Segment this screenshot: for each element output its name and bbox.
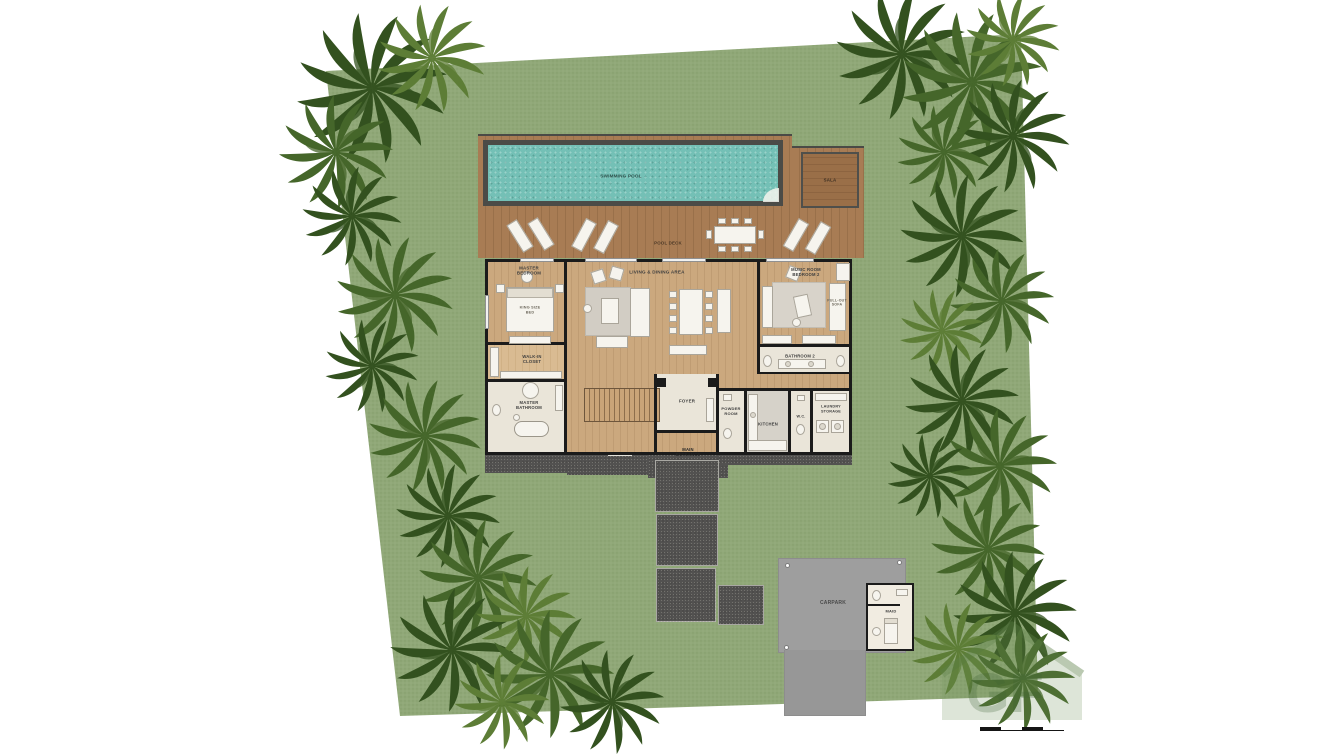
kitchen-sink xyxy=(750,412,756,418)
wardrobe xyxy=(836,263,850,281)
watermark-letters: GF xyxy=(966,661,1044,724)
maid-toilet xyxy=(872,590,881,601)
maid-basin xyxy=(896,589,908,596)
sala-label: SALA xyxy=(824,177,837,182)
basin xyxy=(797,395,805,401)
outdoor-chair xyxy=(744,218,752,224)
music-room-label: MUSIC ROOM BEDROOM 2 xyxy=(789,267,823,277)
outdoor-chair xyxy=(731,218,739,224)
swimming-pool-label: SWIMMING POOL xyxy=(600,173,641,179)
console xyxy=(669,345,707,355)
pool-deck-label: POOL DECK xyxy=(654,240,682,245)
outdoor-chair xyxy=(758,230,764,239)
staircase xyxy=(584,388,660,422)
outdoor-chair xyxy=(718,246,726,252)
master-bathroom-label: MASTER BATHROOM xyxy=(511,400,547,410)
kitchen-counter xyxy=(748,440,787,451)
site-plan: SWIMMING POOL SALA POOL DECK MAIN ENTRAN… xyxy=(0,0,1342,754)
basin xyxy=(785,361,791,367)
entrance-path-square xyxy=(718,585,764,625)
foyer-label: FOYER xyxy=(679,398,695,403)
toilet xyxy=(492,404,501,416)
laundry-counter xyxy=(815,393,847,401)
outdoor-chair xyxy=(706,230,712,239)
foyer-bench xyxy=(706,398,714,422)
piano xyxy=(762,286,773,328)
main-entrance-label: MAIN ENTRANCE xyxy=(670,447,706,457)
coffee-table xyxy=(601,298,619,324)
carpark-label: CARPARK xyxy=(820,600,846,606)
foyer-column xyxy=(657,378,666,387)
dryer-door xyxy=(834,423,841,430)
washer-door xyxy=(819,423,826,430)
toilet xyxy=(836,355,845,367)
dining-chair xyxy=(669,315,677,322)
powder-room-label: POWDER ROOM xyxy=(719,407,743,417)
kitchen-label: KITCHEN xyxy=(758,421,778,426)
bathroom-2-label: BATHROOM 2 xyxy=(785,353,815,358)
dining-chair xyxy=(705,291,713,298)
dining-chair xyxy=(669,291,677,298)
dining-chair xyxy=(705,315,713,322)
dining-chair xyxy=(669,303,677,310)
basin xyxy=(723,394,732,401)
slab-marker xyxy=(784,645,789,650)
scale-bar xyxy=(980,726,1064,731)
basin xyxy=(808,361,814,367)
wardrobe xyxy=(802,335,836,344)
closet-shelf xyxy=(500,371,562,379)
dining-chair xyxy=(705,303,713,310)
toilet xyxy=(763,355,772,367)
entrance-path-square xyxy=(655,460,719,512)
living-dining-label: LIVING & DINING AREA xyxy=(629,269,684,275)
laundry-label: LAUNDRY STORAGE xyxy=(817,404,845,413)
nightstand xyxy=(555,284,564,293)
foyer-column xyxy=(708,378,717,387)
wardrobe xyxy=(762,335,792,344)
dining-chair xyxy=(669,327,677,334)
entrance-path-square xyxy=(656,514,718,566)
outdoor-chair xyxy=(744,246,752,252)
outdoor-dining-table xyxy=(714,226,756,244)
slab-marker xyxy=(897,560,902,565)
toilet xyxy=(723,428,732,439)
nightstand xyxy=(496,284,505,293)
sofa xyxy=(630,288,650,337)
kitchen-island xyxy=(717,289,731,333)
shower xyxy=(522,382,539,399)
walk-in-closet-label: WALK-IN CLOSET xyxy=(518,354,546,364)
bathtub xyxy=(514,421,549,437)
maid-bed-pillow xyxy=(884,618,898,624)
pull-out-sofa-label: PULL-OUT SOFA xyxy=(827,299,847,308)
side-table xyxy=(792,318,801,327)
slab-marker xyxy=(785,563,790,568)
bathroom-vanity xyxy=(555,385,563,411)
outdoor-chair xyxy=(731,246,739,252)
outdoor-chair xyxy=(718,218,726,224)
stool xyxy=(513,414,520,421)
closet-shelf xyxy=(490,347,499,377)
daybed xyxy=(596,336,628,348)
kitchen-counter xyxy=(748,394,758,444)
king-bed-label: KING SIZE BED xyxy=(518,305,542,314)
master-bedroom-label: MASTER BEDROOM xyxy=(514,266,544,277)
toilet xyxy=(796,424,805,435)
side-table xyxy=(583,304,592,313)
dining-chair xyxy=(705,327,713,334)
wc-label: W.C. xyxy=(796,415,805,420)
entrance-path-square xyxy=(656,568,716,622)
maid-table xyxy=(872,627,881,636)
watermark-logo: GF xyxy=(930,612,1095,730)
maid-label: MAID xyxy=(885,610,896,615)
bed-pillows xyxy=(507,288,553,298)
dining-table xyxy=(679,289,703,335)
bed-bench xyxy=(509,336,551,344)
driveway xyxy=(784,650,866,716)
